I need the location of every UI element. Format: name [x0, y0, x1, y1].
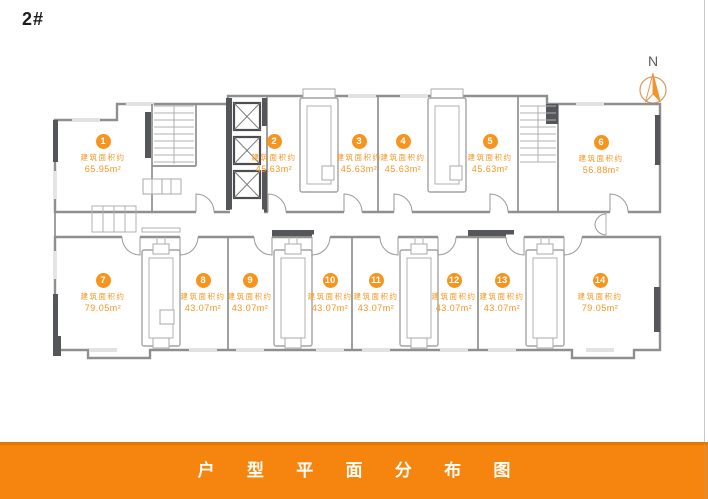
floor-plan — [0, 0, 708, 499]
dark-wall-segment — [272, 230, 314, 236]
floor-plan-page: 2# N — [0, 0, 708, 499]
unit-core — [428, 89, 466, 192]
dark-wall-segment — [53, 120, 58, 162]
unit-core — [400, 237, 438, 348]
elevator-icon — [234, 137, 260, 164]
unit-core — [274, 237, 312, 348]
unit-core — [300, 89, 338, 192]
footer-title: 户型平面分布图 — [0, 445, 708, 497]
footer-bar: 户型平面分布图 — [0, 442, 708, 499]
elevator-icon — [234, 171, 260, 198]
dark-wall-segment — [655, 115, 660, 165]
cabinet-fixture — [143, 179, 181, 194]
dark-wall-segment — [654, 287, 660, 332]
right-edge-divider — [704, 0, 705, 499]
dark-wall-segment — [53, 294, 58, 338]
unit-core — [526, 237, 564, 348]
elevator-icon — [234, 103, 260, 130]
dark-wall-segment — [53, 336, 61, 356]
